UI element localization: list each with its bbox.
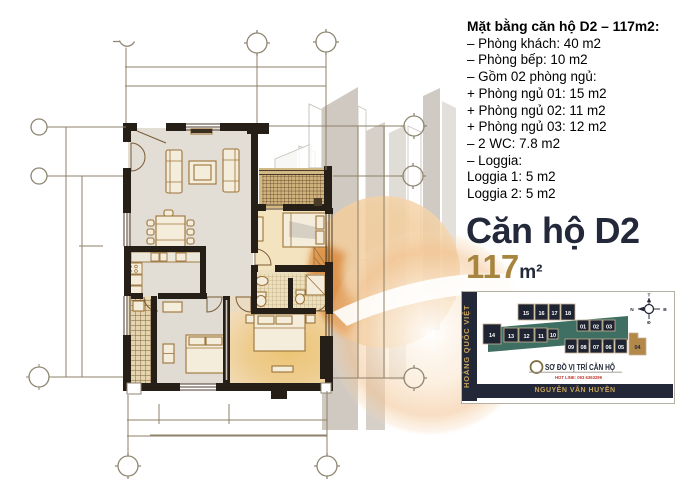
svg-text:17: 17 [551, 311, 557, 317]
svg-text:Đ: Đ [647, 320, 651, 326]
svg-text:08: 08 [580, 345, 586, 351]
svg-text:HOT LINE: 093 6363299: HOT LINE: 093 6363299 [555, 375, 602, 380]
svg-text:04: 04 [634, 345, 641, 351]
svg-text:09: 09 [568, 345, 574, 351]
svg-text:12: 12 [523, 334, 529, 340]
svg-text:18: 18 [565, 311, 571, 317]
svg-text:B: B [663, 307, 667, 313]
svg-text:N: N [630, 307, 634, 313]
svg-text:16: 16 [538, 311, 544, 317]
svg-text:13: 13 [508, 334, 514, 340]
svg-text:14: 14 [489, 333, 496, 339]
svg-text:05: 05 [618, 345, 624, 351]
svg-text:T: T [648, 293, 651, 299]
svg-text:06: 06 [605, 345, 611, 351]
svg-text:10: 10 [550, 333, 556, 339]
svg-text:03: 03 [606, 325, 612, 331]
svg-text:02: 02 [593, 325, 599, 331]
svg-text:11: 11 [538, 334, 544, 340]
svg-text:SƠ ĐỒ VỊ TRÍ CĂN HỘ: SƠ ĐỒ VỊ TRÍ CĂN HỘ [545, 362, 615, 372]
svg-text:01: 01 [580, 325, 586, 331]
svg-text:15: 15 [523, 311, 529, 317]
svg-text:07: 07 [593, 345, 599, 351]
